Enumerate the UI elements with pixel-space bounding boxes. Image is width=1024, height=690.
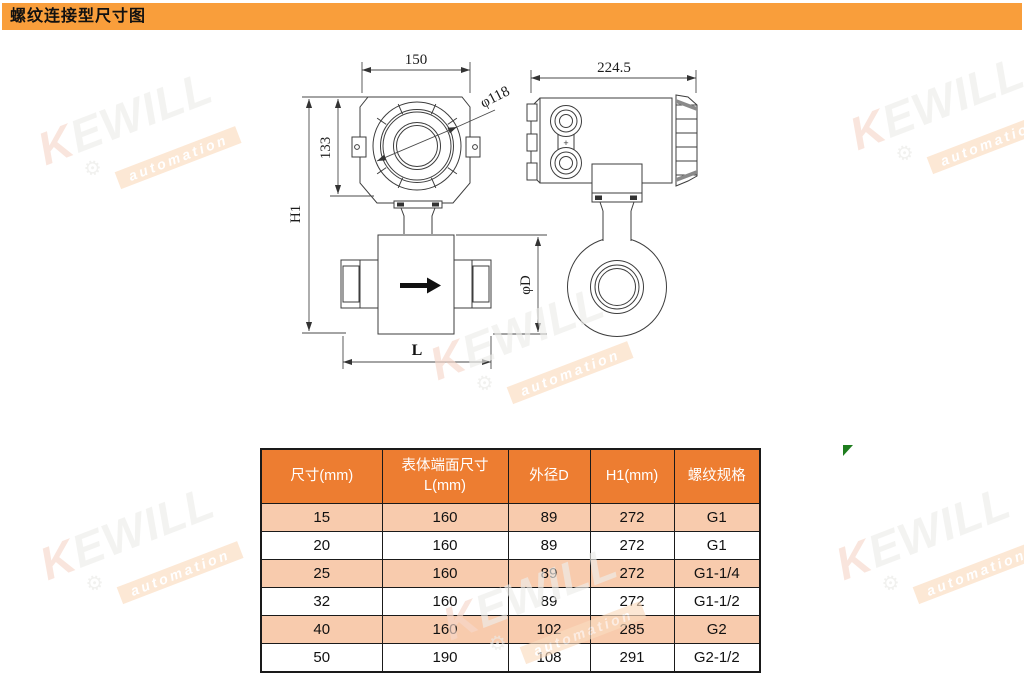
table-row: 25 160 89 272 G1-1/4 (261, 560, 760, 588)
dim-label-bezel-diameter: φ118 (478, 83, 513, 111)
cell-face-length: 160 (382, 504, 508, 532)
dim-label-side-width: 224.5 (597, 60, 631, 76)
cell-face-length: 160 (382, 588, 508, 616)
cell-size: 40 (261, 616, 382, 644)
table-row: 40 160 102 285 G2 (261, 616, 760, 644)
cell-thread-spec: G2 (674, 616, 760, 644)
dim-label-body-length: L (412, 342, 423, 359)
gland-plus-label: + (563, 138, 568, 148)
dim-label-front-width: 150 (405, 52, 428, 68)
cell-size: 32 (261, 588, 382, 616)
dim-label-body-diameter: φD (518, 275, 534, 295)
cell-face-length: 160 (382, 532, 508, 560)
cell-outer-diameter: 89 (508, 560, 590, 588)
col-header-thread-spec: 螺纹规格 (674, 449, 760, 504)
cell-h1: 272 (590, 588, 674, 616)
cell-h1: 272 (590, 560, 674, 588)
flowmeter-side-view (527, 95, 697, 337)
cell-h1: 291 (590, 644, 674, 673)
col-header-h1: H1(mm) (590, 449, 674, 504)
dim-label-total-height: H1 (288, 205, 304, 223)
cell-h1: 272 (590, 532, 674, 560)
cell-face-length: 160 (382, 560, 508, 588)
col-header-size: 尺寸(mm) (261, 449, 382, 504)
cell-thread-spec: G1-1/4 (674, 560, 760, 588)
table-header-row: 尺寸(mm) 表体端面尺寸 L(mm) 外径D H1(mm) 螺纹规格 (261, 449, 760, 504)
table-row: 32 160 89 272 G1-1/2 (261, 588, 760, 616)
cell-outer-diameter: 102 (508, 616, 590, 644)
cell-face-length: 160 (382, 616, 508, 644)
col-header-face-length: 表体端面尺寸 L(mm) (382, 449, 508, 504)
cell-outer-diameter: 89 (508, 532, 590, 560)
cell-outer-diameter: 89 (508, 504, 590, 532)
cell-thread-spec: G2-1/2 (674, 644, 760, 673)
table-row: 50 190 108 291 G2-1/2 (261, 644, 760, 673)
cell-h1: 272 (590, 504, 674, 532)
cell-outer-diameter: 108 (508, 644, 590, 673)
table-row: 15 160 89 272 G1 (261, 504, 760, 532)
dim-label-head-height: 133 (318, 137, 334, 160)
dimension-spec-table: 尺寸(mm) 表体端面尺寸 L(mm) 外径D H1(mm) 螺纹规格 15 1… (260, 448, 761, 673)
cell-thread-spec: G1 (674, 504, 760, 532)
flowmeter-front-view (341, 97, 491, 334)
cell-size: 50 (261, 644, 382, 673)
cell-thread-spec: G1 (674, 532, 760, 560)
green-corner-mark (843, 445, 853, 456)
cell-h1: 285 (590, 616, 674, 644)
cell-size: 15 (261, 504, 382, 532)
cell-face-length: 190 (382, 644, 508, 673)
cell-size: 20 (261, 532, 382, 560)
table-row: 20 160 89 272 G1 (261, 532, 760, 560)
cell-thread-spec: G1-1/2 (674, 588, 760, 616)
col-header-outer-diameter: 外径D (508, 449, 590, 504)
cell-size: 25 (261, 560, 382, 588)
cell-outer-diameter: 89 (508, 588, 590, 616)
